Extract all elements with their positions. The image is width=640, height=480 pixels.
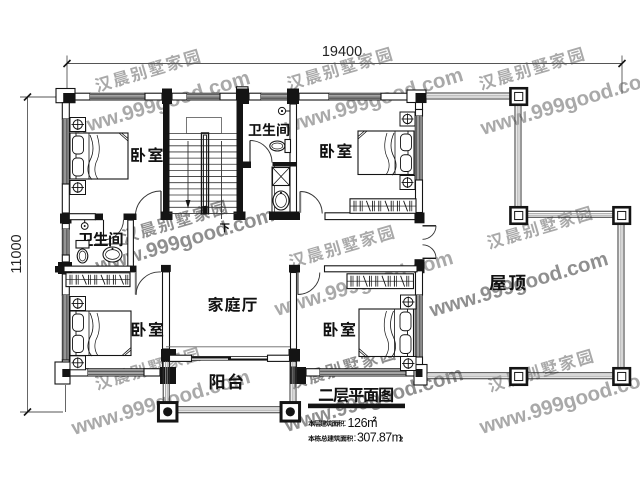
svg-text:307.87m: 307.87m (357, 431, 402, 445)
svg-text:2: 2 (399, 435, 403, 444)
svg-text:19400: 19400 (322, 44, 362, 60)
svg-text:11000: 11000 (9, 234, 25, 273)
svg-text::: : (344, 417, 347, 429)
svg-text:2: 2 (373, 415, 377, 424)
svg-text::: : (354, 432, 357, 444)
